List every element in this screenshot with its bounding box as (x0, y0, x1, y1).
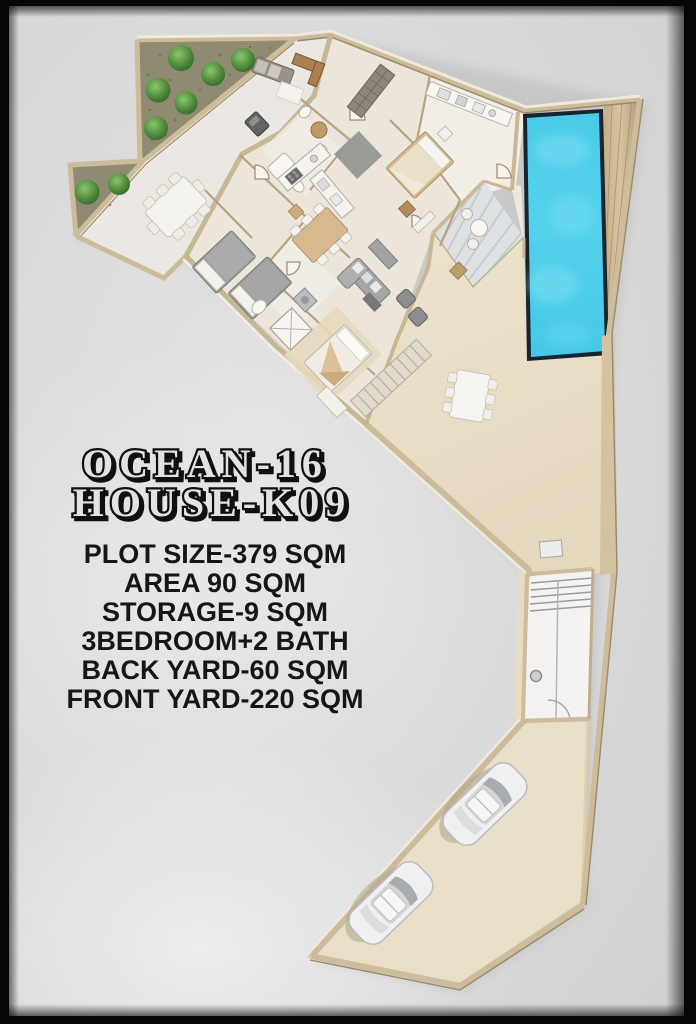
svg-text:PLOT SIZE-379 SQM: PLOT SIZE-379 SQM (84, 539, 347, 569)
svg-text:HOUSE-K09: HOUSE-K09 (73, 480, 351, 525)
svg-text:AREA 90 SQM: AREA 90 SQM (124, 568, 306, 598)
svg-text:FRONT YARD-220 SQM: FRONT YARD-220 SQM (66, 684, 363, 714)
svg-text:3BEDROOM+2 BATH: 3BEDROOM+2 BATH (81, 626, 348, 656)
svg-text:BACK YARD-60 SQM: BACK YARD-60 SQM (81, 655, 348, 685)
svg-text:STORAGE-9 SQM: STORAGE-9 SQM (102, 597, 328, 627)
